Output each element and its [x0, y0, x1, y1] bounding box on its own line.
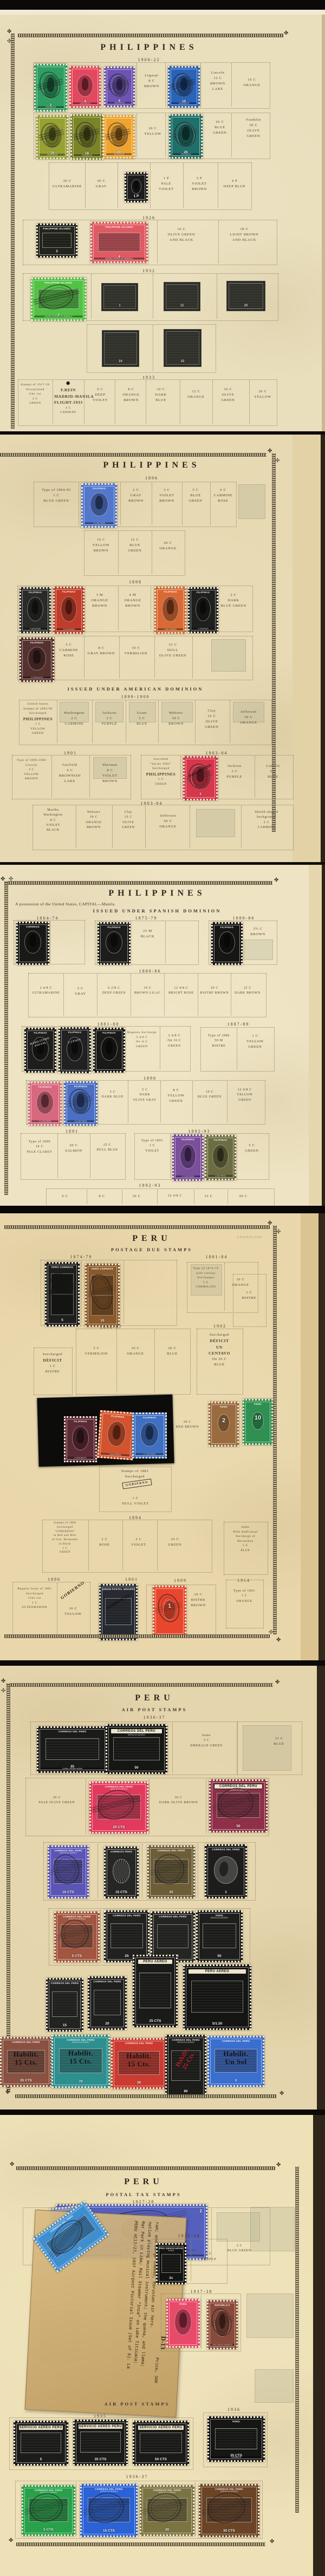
stamp-space-label: ✹F.REINMADRID-MANILAFLIGHT-19334 CCARMIN… [54, 380, 82, 415]
printed-stamp-illustration: 24 [102, 330, 139, 367]
stamp-space-label: 4 MORANGEBROWN [119, 593, 146, 609]
stamp-frame: 10CENTAVOS [171, 69, 197, 105]
illustration-denom: 12 [166, 304, 198, 307]
stamp-inscription: FILIPINAS [23, 641, 51, 644]
label-line: BLUE GREEN [218, 603, 249, 609]
stamp-space-label: 10 CYELLOW [60, 1606, 87, 1617]
label-line: BROWN LILAC [132, 991, 163, 996]
stamp: FILIPINAS5 MILESIMAS [97, 1410, 136, 1460]
page-divider [0, 2110, 325, 2115]
stamp-space-label: 8 CGRAY BROWN [86, 646, 117, 656]
stamp-frame: CORREOS DEL PERÚ25 [107, 1913, 147, 1960]
stamp: CORREOS DEL PERÚSERVICIO AÉREO10 CTS [48, 1845, 89, 1898]
ornament-icon: ✣ [276, 1230, 281, 1235]
stamp-frame: FILIPINAS2 C DE PESO [84, 486, 114, 525]
label-line: ORANGE [238, 83, 265, 88]
stamp-vignette [206, 2498, 252, 2522]
label-line: 5 C [99, 1090, 127, 1095]
label-line: 2 4/8 C [30, 986, 62, 991]
year-label: 1936 [201, 2407, 266, 2412]
label-line: 25 C [92, 1143, 122, 1148]
label-line: 10 C [132, 986, 163, 991]
year-label: 1874-79 [49, 1254, 114, 1259]
stamp-vignette [171, 2051, 200, 2081]
label-line: 5 C [238, 1143, 265, 1148]
page-edge-shadow [292, 435, 325, 862]
label-line: 5 C [66, 986, 95, 991]
stamp-space-label: Type of 1894-951 CBLUE GREEN [36, 488, 77, 504]
dashed-divider [76, 2482, 76, 2536]
label-line: VIOLET [92, 773, 128, 779]
label-line: 16 C [238, 77, 265, 83]
dashed-divider [100, 1910, 101, 1963]
stamp-denom: 5 [17, 2457, 65, 2461]
dashed-divider [53, 380, 53, 424]
stamp-vignette [77, 75, 93, 96]
label-line: 16 C [161, 227, 201, 232]
stamp-inscription: REPÚBLICA [210, 2303, 235, 2306]
stamp-subinscription: SERVICIO AÉREO [202, 2490, 256, 2493]
stamp-inscription: FILIPINAS [158, 590, 183, 593]
dashed-divider [118, 531, 119, 574]
stamp-space-label: 5 CDARK BLUE [99, 1090, 127, 1100]
label-line: BROWNISH [53, 773, 87, 779]
stamp-vignette [214, 2310, 230, 2337]
stamp-space-label: 20 CYELLOW [250, 389, 275, 400]
label-line: Jackson [94, 711, 125, 716]
label-line: BLUE [263, 1742, 295, 1747]
stamp-frame: CORREOS DEL PERÚ1 [207, 1847, 244, 1896]
stamp-vignette [29, 2498, 68, 2522]
dashed-divider [136, 63, 137, 107]
stamp-space-label: 3 CVIOLETBROWN [153, 488, 180, 504]
stamp-inscription: PHILIPPINE ISLANDS [94, 225, 145, 228]
label-line: OLIVE GRAY [130, 1098, 160, 1103]
stamp-frame: 16CENTAVOS [39, 118, 66, 156]
stamp-frame: PERÚ10 [245, 1402, 270, 1442]
stamp-space-label: 5 CBLUEGREEN [183, 488, 208, 504]
stamp-frame: PERÚ AÉREOS/1.50 [186, 1967, 249, 2027]
stamp-denom: 10 [88, 1319, 116, 1323]
label-line: 10 C [125, 1194, 148, 1199]
page-divider [0, 1660, 325, 1666]
label-line: Overprinted [19, 387, 51, 392]
label-line: GREEN [43, 1550, 87, 1555]
stamp-inscription: PERÚ AÉREO [138, 1959, 173, 1964]
stamp-vignette [214, 1856, 238, 1884]
dashed-divider [84, 637, 84, 678]
stamp-inscription: FILIPINAS [23, 590, 48, 594]
label-line: 1 C [43, 1547, 87, 1551]
label-line: 15 C [114, 815, 143, 820]
label-line: 26 C [208, 120, 232, 125]
stamp-space-label: Franklin30 COLIVEGREEN [240, 117, 267, 139]
stamp-2c-mayon: PHILIPPINE ISLANDS2UNITED STATES OF AMER… [31, 278, 86, 321]
stamp-space-label: Clay15 COLIVEGREEN [114, 810, 143, 830]
label-line: Shield-shaped [244, 810, 289, 815]
ornament-icon: ✤ [1, 1679, 5, 1684]
stamp: CORREOS DEL PERÚSERVICIO AÉREO25 CTS [89, 1782, 148, 1834]
stamp-denom: 50 [212, 1824, 264, 1828]
stamp: 16CENTAVOS [70, 114, 103, 160]
stamp-inscription: FILIPINAS [67, 1085, 94, 1088]
label-line: United States [21, 702, 55, 707]
stamp: PERÚ CORREOS5 [45, 1262, 80, 1326]
label-line: BLUE GREEN [194, 1095, 225, 1100]
label-line: PURPLE [219, 774, 250, 780]
label-line: UN [198, 1344, 240, 1351]
label-line: YELLOW [162, 1093, 190, 1099]
stamp-frame: FILIPINAS2 C DE PESO [135, 1415, 164, 1456]
label-line: ORANGE [182, 395, 210, 400]
label-line: DÉFICIT [35, 1357, 70, 1364]
label-line: GREEN [208, 130, 232, 136]
stamp-frame: CORREOS DEL PERÚ15 [49, 1981, 81, 2029]
album-page-philippines-1896: ✤✣PHILIPPINES1896Type of 1894-951 CBLUE … [0, 435, 325, 862]
label-line: Same [187, 1733, 226, 1738]
stamp-denom: 50 [109, 1766, 164, 1770]
label-line: 2 P [185, 176, 213, 181]
label-line: 4 C [54, 406, 82, 411]
label-line: GRAY [122, 493, 149, 498]
stamp-space-label: 20 CSALMON [60, 1143, 88, 1154]
stamp-space-label: 10 CBLUE GREEN [194, 1090, 225, 1100]
stamp: PHILIPPINE ISLANDS4UNITED STATES OF AMER… [90, 222, 148, 263]
ornament-icon: ✤ [268, 449, 272, 454]
stamp-space-label: SameWith AdditionalSurcharge ofHorseshoe… [225, 1525, 266, 1553]
stamp-space-label: Type of 1874-79with variousSurcharges5 C… [189, 1266, 223, 1290]
year-label: 1932 [116, 268, 181, 273]
stamp-denom: 30 CTS [202, 2529, 256, 2533]
label-line: 1 C [108, 1496, 162, 1501]
stamp-space-label: 16 COLIVE GREENAND BLACK [161, 227, 201, 243]
stamp: PRO DESOCUPADOSPERÚ2c [156, 2243, 186, 2284]
label-line: PHILIPPINES [21, 716, 55, 722]
label-line: 3 C [219, 769, 250, 774]
stamp: PERÚ [166, 2299, 200, 2348]
label-line: YELLOW [86, 543, 116, 548]
stamp-vignette [44, 124, 60, 148]
label-line: Surcharges [189, 1276, 223, 1280]
stamp-space-label: Clay15 COLIVEGREEN [196, 708, 227, 730]
dashed-divider [122, 1190, 122, 1204]
dashed-divider [165, 63, 166, 107]
label-line: GRAY [88, 184, 115, 189]
stamp-vignette [72, 1090, 89, 1114]
stamp-peru-aereo-150: PERÚ AÉREOS/1.50 [183, 1964, 251, 2030]
stamp-2c-green: 2CENTAVOS [34, 64, 67, 111]
stamp-space-label: 30 CDARK OLIVE BROWN [153, 1796, 204, 1806]
dashed-divider [152, 483, 152, 525]
label-line: Webster [159, 711, 193, 716]
stamp-frame: 2 [186, 759, 215, 798]
label-line: 15 C [263, 1736, 295, 1742]
dashed-divider [231, 974, 231, 1015]
stamp-vignette [175, 75, 192, 96]
label-line: GREEN [162, 1099, 190, 1104]
stamp-frame: PERÚSERVICIO AÉREO50 [199, 1913, 240, 1960]
stamp: CORREOS DEL PERÚSERVICIO AÉREO50 [209, 1779, 268, 1832]
stamp-peru-aereo-25: PERÚ AÉREO25 CTS [133, 1955, 178, 2027]
label-line: 1 P [153, 176, 180, 181]
label-line: CARMINE [244, 825, 289, 830]
dashed-divider [128, 1081, 128, 1122]
stamp: PERÚSERVICIO AÉREO50 [196, 1910, 243, 1962]
label-line: Magenta Surcharge [126, 1030, 158, 1035]
label-line: CARMINE [58, 721, 90, 727]
label-line: 2 4/8 C [126, 1035, 158, 1040]
label-line: 5 C [56, 642, 82, 648]
ornament-icon: ✣ [275, 458, 279, 464]
label-line: Type of 1891 [136, 1139, 168, 1144]
dashed-divider [151, 587, 151, 630]
page-title: PERU [70, 1234, 233, 1244]
stamp-frame: CORREOS DEL PERÚSERVICIO AÉREO5 CTS [24, 2488, 73, 2533]
stamp: FILIPINAS3 CENTAVOS [19, 638, 54, 682]
stamp-space-label: 12 4/8 C [160, 1194, 190, 1199]
stamp-vignette [157, 1924, 189, 1948]
chain-border [4, 881, 272, 885]
stamp-vignette [174, 2309, 192, 2335]
ornament-icon: ✤ [7, 29, 11, 35]
stamp-frame: CORREOS DEL PERÚSERVICIO AÉREO20 [142, 2488, 192, 2533]
stamp-space-label: 10 CBROWN LILAC [132, 986, 163, 996]
stamp-vignette [154, 1859, 188, 1884]
label-line: Clay [196, 708, 227, 714]
label-line: 1 C [21, 722, 55, 727]
label-line: DULL VOILET [108, 1501, 162, 1507]
label-line: OLIVE [196, 719, 227, 725]
label-line: 5 C [183, 488, 208, 493]
label-line: ORANGE [78, 820, 109, 825]
dashed-divider [217, 274, 217, 319]
stamp-vignette [110, 124, 127, 147]
stamp-space-label: 2 4/8 CULTRAMARINE [30, 986, 62, 996]
label-line: in Red and Bust [43, 1534, 87, 1538]
label-line: ORANGE [154, 546, 182, 551]
stamp-frame: PHILIPPINE ISLANDS2UNITED STATES OF AMER… [34, 280, 83, 318]
year-label: 1899-1900 [103, 694, 168, 699]
stamp-space-label: 2½ CBROWN [244, 926, 272, 937]
stamp-frame: 2CENTAVOS [37, 67, 64, 109]
stamp-frame: CORREOS DEL PERÚSERVICIO AÉREO80 [168, 2038, 204, 2095]
stamp-inscription: FILIPINAS [56, 590, 81, 593]
stamp-frame: FILIPINAS2 MILESIMAS [56, 589, 82, 631]
stamp-vignette [79, 124, 95, 148]
dashed-divider [194, 1190, 194, 1204]
stamp-frame: PHILIPPINE ISLANDS2 [39, 226, 75, 255]
dashed-divider [86, 1779, 86, 1834]
stamp-space-label: 5 CCARMINEROSE [56, 642, 82, 659]
dashed-divider [152, 531, 152, 574]
label-line: Surcharged [21, 711, 55, 716]
ornament-icon: ✣ [269, 1630, 273, 1635]
stamp-frame: PERÚ35 CTSCORREOS [210, 2419, 262, 2459]
stamp-inscription: PERÚ [170, 2302, 197, 2305]
dashed-divider [76, 806, 76, 848]
stamp-frame: PHILIPPINE ISLANDS4UNITED STATES OF AMER… [93, 225, 145, 260]
stamp-caption: 5 MILESIMAS [158, 628, 183, 630]
stamp-space-label: 18 CLIGHT BROWNAND BLACK [225, 227, 264, 243]
stamp-space-label: United StatesStamps of 1894-99Surcharged… [21, 702, 55, 736]
page-divider [0, 1206, 325, 1213]
label-line: 12 4/8 C [160, 1194, 190, 1199]
label-line: RED BROWN [174, 1425, 200, 1430]
stamp-vignette [67, 1037, 83, 1061]
stamp: SERVICIO AÉREO PERÚ50 CTS [133, 2421, 189, 2466]
stamp-inscription: SERVICIO AÉREO PERÚ [18, 2425, 63, 2430]
stamp-frame: CORREOS PERÚ15 CTS [107, 1849, 136, 1896]
stamp-caption: ¡Arriba, siempre arriba! [40, 1767, 105, 1770]
stamp-inscription: CORREOS DEL PERÚ [40, 1730, 105, 1733]
stamp-space-label: Jackson3 CPURPLE [219, 764, 250, 780]
stamp-vignette [219, 931, 235, 954]
ornament-icon: ✤ [279, 2091, 284, 2097]
year-label: 1936-37 [122, 1715, 187, 1720]
label-line: Stamps of 1894-99 [21, 707, 55, 712]
stamp-space-label: 1 CYELLOWGREEN [238, 1034, 272, 1050]
dashed-divider [153, 274, 153, 319]
stamp-denom: 15 [49, 2023, 80, 2027]
chain-border [15, 2094, 276, 2098]
stamp-vignette [59, 2048, 103, 2073]
dashed-divider [126, 701, 126, 743]
stamp-frame: FILIPINAS5 MILESIMAS [100, 1413, 133, 1457]
label-line: 2 C [218, 593, 249, 598]
illustration-frame: 20 [229, 283, 263, 309]
label-line: GREEN [240, 134, 267, 139]
stamp-frame: CORREOS DEL PERÚSERVICIO AÉREO10 CTS [50, 1848, 86, 1896]
dashed-divider [97, 974, 97, 1015]
stamp-vignette [61, 596, 76, 622]
stamp-denom: 30 [114, 2081, 164, 2085]
year-label: 1898 [103, 580, 168, 584]
stamp-space-label: Shield-shapedbackground2 CCARMINE [244, 810, 289, 830]
year-label: 1875-79 [114, 916, 179, 921]
page-divider [0, 0, 325, 10]
label-line: Surcharge of [225, 1534, 266, 1539]
stamp-space-label: 25 CDARK BROWN [232, 986, 263, 996]
label-line: ORANGE [148, 824, 187, 830]
dashed-divider [136, 114, 137, 157]
stamp-space-label: 20 CPALE OLIVE GREEN [30, 1796, 83, 1806]
label-line: 20 C [199, 986, 230, 991]
ghost-stamp [246, 2294, 294, 2338]
dashed-divider [227, 1190, 228, 1204]
stamp-frame: FILIPINAS [96, 1030, 122, 1070]
stamp-space-label: Same5 CEMERALD GREEN [187, 1733, 226, 1749]
label-line: AND BLACK [161, 238, 201, 243]
stamp-denom: 25 CTS [136, 2019, 174, 2023]
year-label: 1936-37 [105, 2474, 170, 2479]
label-line: 2 C [122, 488, 149, 493]
stamp-space-label: Magenta Surcharge2 4/8 COn ⅛ CGREEN [126, 1030, 158, 1049]
stamp-denom: 2c [159, 2276, 183, 2280]
stamp-vignette [28, 647, 45, 670]
label-line: GREEN [161, 1044, 187, 1049]
label-line: BROWN [86, 548, 116, 554]
stamp-denom: 20 [143, 2528, 191, 2532]
label-line: 1 C [142, 777, 179, 782]
label-line: ROSE [56, 653, 82, 659]
label-line: DÉFICIT [198, 1338, 240, 1344]
dashed-divider [97, 1844, 98, 1898]
stamp: CORREOS [16, 922, 49, 965]
label-line: 5 C [189, 1280, 223, 1285]
label-line: Type of 1880 [203, 1034, 235, 1039]
label-line: 12 4/8 C [229, 1088, 261, 1093]
label-line: LIGHT BROWN [225, 232, 264, 238]
label-line: 12 4/8 C [166, 986, 197, 991]
label-line: GREEN [21, 731, 55, 736]
label-line: 50 C [174, 1420, 200, 1425]
year-label: 1927-28 [111, 2199, 176, 2204]
label-line: GREEN [120, 548, 150, 554]
stamp-space-label: Legaspi8 CBROWN [138, 73, 165, 89]
stamp-4c-red: 4CENTAVOS [69, 66, 101, 108]
label-line: GREEN [183, 498, 208, 504]
label-line: 5 C [79, 1346, 114, 1351]
stamp-caption: CENTAVOS [171, 102, 197, 104]
dashed-divider [172, 1723, 173, 1773]
label-line: 30 C [153, 1796, 204, 1800]
ghost-stamp [243, 1725, 291, 1771]
page-edge-shadow [322, 865, 325, 1206]
section-subtitle: AIR POST STAMPS [50, 2401, 224, 2407]
dashed-divider [198, 974, 198, 1015]
label-line: 2 C [19, 397, 51, 402]
label-line: Grant [127, 711, 157, 716]
label-line: BLUE [257, 774, 289, 780]
stamp-space-label: Sherman8 CVIOLETBROWN [92, 763, 128, 784]
label-line: BLUE [120, 543, 150, 548]
stamp-album-scan: ✤✣✤PHILIPPINES1906-222CENTAVOS4CENTAVOS6… [0, 0, 325, 2576]
dashed-divider [123, 1261, 124, 1324]
label-line: Type of 1874-79 [189, 1266, 223, 1271]
ornament-icon: ✤ [268, 1221, 272, 1226]
stamp: 20CENTAVOS [103, 115, 135, 159]
album-page-peru-postage-due: ✤✣PHILIPPINESPERUPOSTAGE DUE STAMPS1874-… [0, 1213, 325, 1660]
dashed-divider [145, 806, 146, 848]
chain-border [4, 1225, 270, 1229]
label-line: Jefferson [232, 709, 265, 715]
dashed-divider [206, 1779, 206, 1834]
stamp: PHILIPPINE ISLANDS2 [36, 224, 77, 258]
stamp-inscription: FILIPINAS [84, 487, 114, 490]
stamp-frame: CORREOS DEL PERÚSERVICIO AÉREO50 [212, 1782, 265, 1830]
stamp: FILIPINAS [93, 1028, 125, 1073]
stamp-space-label: 10 CBISTREBROWN [184, 1592, 212, 1608]
stamp-caption: UNITED STATES OF AMERICA [34, 316, 83, 318]
label-line: 15 C [197, 1194, 220, 1199]
stamp-inscription: CORREOS DEL PERÚ [114, 2041, 164, 2045]
stamp: FILIPINASC DE PESO [205, 1135, 236, 1180]
label-line: background [244, 815, 289, 820]
label-line: ROSE [91, 1542, 118, 1548]
label-line: PHILIPPINES [142, 771, 179, 778]
dashed-divider [180, 756, 181, 797]
label-line: Surcharged [198, 1332, 240, 1338]
label-line: BISTRE [203, 1044, 235, 1049]
stamp-vignette [7, 2050, 45, 2073]
label-line: CENTAVO [198, 1350, 240, 1357]
label-line: YELLOW [229, 1093, 261, 1098]
label-line: like cut [19, 392, 51, 397]
stamp-space-label: 2 CVIOLET [125, 1537, 153, 1548]
stamp-subinscription: SERVICIO AÉREO [143, 2492, 191, 2494]
stamp-vignette [61, 1924, 94, 1948]
stamp-denom: 5 [48, 1318, 76, 1322]
